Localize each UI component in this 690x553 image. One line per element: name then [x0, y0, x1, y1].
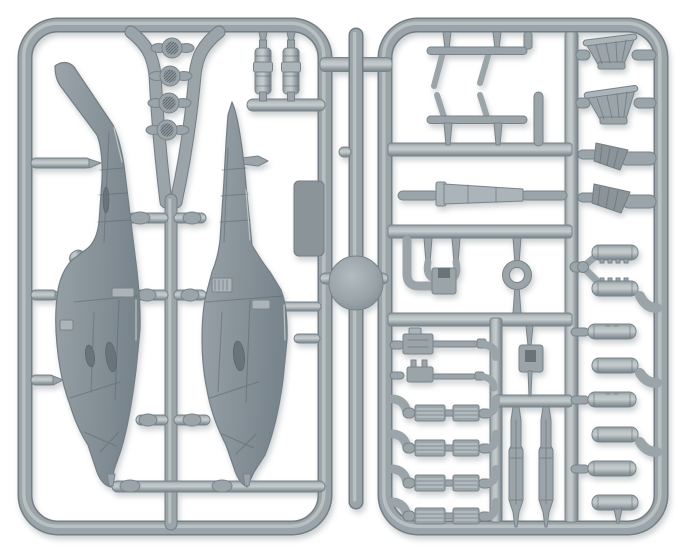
landing-skid [427, 32, 532, 86]
sight-ring [503, 238, 532, 313]
exhaust-stack [282, 32, 301, 101]
runner-stub [339, 147, 351, 157]
missile-rail-row [393, 469, 496, 491]
sprue-photo [0, 0, 690, 553]
chin-gun [390, 328, 496, 357]
rocket-pod-tube [592, 358, 638, 373]
gate-stub [242, 156, 268, 166]
missile-rails [393, 399, 496, 524]
missiles [509, 407, 553, 527]
landing-skids [427, 32, 543, 146]
access-panel [294, 181, 324, 256]
rocket-pod-tube [588, 461, 636, 476]
sprue [24, 23, 661, 528]
missile-rail-row [393, 502, 496, 524]
missile-rail-row [393, 434, 496, 456]
sprue-drawing [0, 0, 690, 553]
rocket-pod-tubes [570, 245, 657, 523]
exhaust-stack [254, 32, 273, 101]
sprue-disc [329, 256, 383, 310]
exhaust-funnels [576, 34, 656, 124]
chin-gun [390, 360, 494, 388]
chin-guns [390, 328, 496, 388]
rocket-pod-tube [592, 495, 638, 510]
sensor-bracket [519, 326, 543, 396]
nose-gate [107, 474, 115, 486]
rocket-pod-tube [592, 278, 638, 296]
missile [509, 407, 523, 527]
rotor-hub-disc [151, 38, 194, 58]
intake-scoop [578, 143, 656, 170]
tail-boom-section [398, 182, 567, 206]
exhaust-funnel [576, 34, 656, 69]
rocket-pod-tube [588, 324, 636, 339]
rocket-pod-tube [592, 427, 638, 442]
rocket-pod-tube [592, 245, 638, 263]
nose-gate [243, 474, 251, 486]
rocket-pod-tube [588, 392, 636, 407]
gun-sight-yoke [407, 238, 460, 294]
intake-scoop [578, 184, 656, 213]
fuselage-half-left [55, 63, 140, 487]
intake-scoops [578, 143, 656, 213]
missile [539, 407, 553, 527]
landing-skid [427, 92, 543, 146]
missile-rail-row [393, 399, 496, 421]
exhaust-funnel [576, 85, 656, 124]
